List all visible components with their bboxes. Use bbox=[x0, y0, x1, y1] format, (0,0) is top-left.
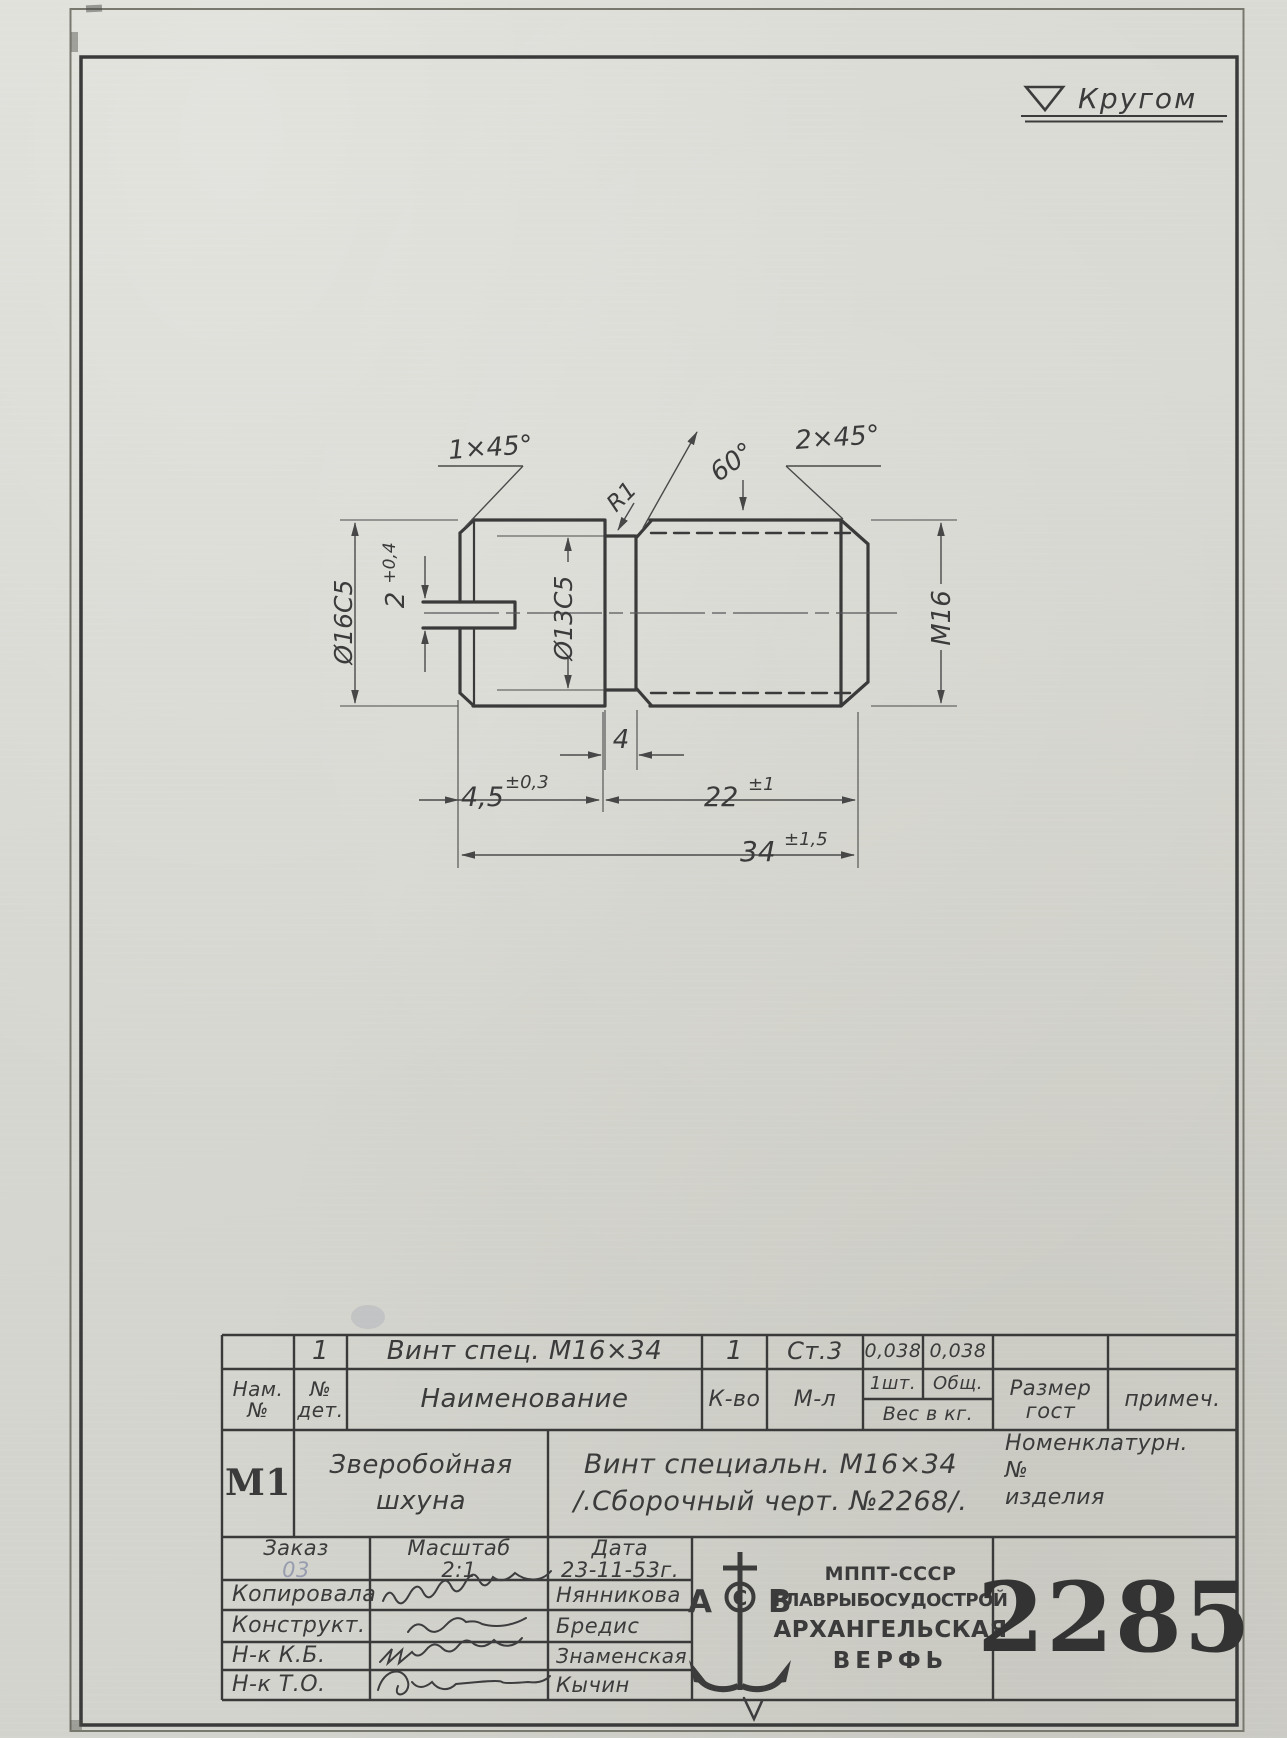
screw-slot bbox=[423, 602, 515, 628]
order-cell: Заказ 03 bbox=[222, 1538, 370, 1580]
header-qty: К-во bbox=[702, 1371, 767, 1428]
finish-triangle-icon bbox=[1026, 87, 1063, 110]
head-diameter-label: Ø16С5 bbox=[329, 580, 358, 666]
order-label: Заказ bbox=[263, 1537, 329, 1559]
callout-thread-angle: 60° bbox=[643, 432, 760, 528]
header-det: № дет. bbox=[294, 1371, 347, 1428]
staff-name-head-to: Кычин bbox=[556, 1670, 692, 1700]
drawing-number: 2285 bbox=[993, 1537, 1237, 1700]
org-line4: ВЕРФЬ bbox=[833, 1649, 948, 1673]
object-name-line1: Зверобойная bbox=[329, 1452, 512, 1479]
signature-designer bbox=[408, 1618, 526, 1632]
scale-cell: Масштаб 2:1 bbox=[370, 1538, 548, 1580]
nomenclature: Номенклатурн. № изделия bbox=[1005, 1432, 1237, 1535]
staff-role-head-kb: Н-к К.Б. bbox=[232, 1642, 368, 1670]
part-row-qty: 1 bbox=[702, 1337, 767, 1367]
date-cell: Дата 23-11-53г. bbox=[548, 1538, 692, 1580]
neck-length-label: 4 bbox=[613, 725, 630, 755]
nomenclature-line2: № bbox=[1005, 1459, 1028, 1482]
signature-head-to bbox=[378, 1672, 550, 1695]
part-title: Винт специальн. М16×34 /.Сборочный черт.… bbox=[548, 1432, 993, 1535]
callout-chamfer-right: 2×45° bbox=[786, 420, 881, 519]
finish-label: Кругом bbox=[1078, 82, 1197, 115]
header-size: Размер гост bbox=[993, 1371, 1108, 1428]
nomenclature-line1: Номенклатурн. bbox=[1005, 1432, 1188, 1455]
organization: МППТ-СССР ГЛАВРЫБОСУДОСТРОЙ АРХАНГЕЛЬСКА… bbox=[788, 1545, 993, 1693]
dim-neck-length: 4 bbox=[560, 710, 684, 770]
header-weight-total: Общ. bbox=[923, 1369, 993, 1399]
staff-name-copier: Нянникова bbox=[556, 1580, 692, 1610]
callout-chamfer-left: 1×45° bbox=[438, 430, 534, 527]
staff-name-head-kb: Знаменская bbox=[556, 1642, 692, 1670]
part-row-weight-total: 0,038 bbox=[923, 1337, 993, 1367]
staff-role-designer: Конструкт. bbox=[232, 1610, 368, 1642]
chamfer-left-label: 1×45° bbox=[447, 430, 533, 466]
header-nom: Нам. № bbox=[222, 1371, 294, 1428]
blueprint-sheet: Кругом Ø16С5 2 +0,4 bbox=[0, 0, 1287, 1738]
header-name: Наименование bbox=[347, 1371, 702, 1428]
head-length-label: 4,5 bbox=[461, 782, 504, 813]
header-material: М-л bbox=[767, 1371, 863, 1428]
staff-role-copier: Копировала bbox=[232, 1580, 368, 1610]
thread-length-label: 22 bbox=[704, 782, 738, 813]
header-weight-each: 1шт. bbox=[863, 1369, 923, 1399]
scale-label: Масштаб bbox=[407, 1537, 510, 1559]
part-row-name: Винт спец. М16×34 bbox=[352, 1337, 697, 1367]
finish-mark: Кругом bbox=[1021, 82, 1227, 122]
staff-role-head-to: Н-к Т.О. bbox=[232, 1670, 368, 1700]
org-line2: ГЛАВРЫБОСУДОСТРОЙ bbox=[774, 1592, 1008, 1611]
slot-width-label: 2 bbox=[381, 592, 411, 609]
neck-diameter-label: Ø13С5 bbox=[549, 576, 578, 662]
header-weight-unit: Вес в кг. bbox=[863, 1399, 993, 1430]
overall-length-tolerance: ±1,5 bbox=[784, 829, 828, 850]
date-label: Дата bbox=[592, 1537, 648, 1559]
header-det-line1: № bbox=[310, 1379, 331, 1400]
header-det-line2: дет. bbox=[297, 1400, 343, 1421]
nomenclature-line3: изделия bbox=[1005, 1486, 1105, 1509]
header-size-line1: Размер bbox=[1010, 1377, 1092, 1399]
part-row-weight-each: 0,038 bbox=[863, 1337, 923, 1367]
part-title-line2: /.Сборочный черт. №2268/. bbox=[574, 1488, 968, 1516]
dim-slot-width: 2 +0,4 bbox=[380, 542, 425, 672]
object-name: Зверобойная шхуна bbox=[294, 1432, 548, 1535]
head-length-tolerance: ±0,3 bbox=[505, 772, 549, 793]
thread-label: М16 bbox=[927, 590, 957, 646]
part-title-line1: Винт специальн. М16×34 bbox=[584, 1451, 957, 1479]
org-line1: МППТ-СССР bbox=[825, 1565, 957, 1585]
header-note: примеч. bbox=[1108, 1371, 1237, 1428]
header-nom-line2: № bbox=[247, 1400, 268, 1421]
part-row-number: 1 bbox=[294, 1337, 347, 1367]
scale-value: 2:1 bbox=[441, 1559, 476, 1581]
slot-width-tolerance: +0,4 bbox=[380, 542, 400, 583]
header-size-line2: гост bbox=[1026, 1400, 1076, 1422]
chamfer-right-label: 2×45° bbox=[794, 420, 880, 456]
finish-underline bbox=[1021, 116, 1227, 122]
org-line3: АРХАНГЕЛЬСКАЯ bbox=[773, 1618, 1007, 1642]
thread-length-tolerance: ±1 bbox=[748, 774, 775, 795]
assembly-code: М1 bbox=[222, 1432, 294, 1535]
staff-name-designer: Бредис bbox=[556, 1610, 692, 1642]
callout-fillet: R1 bbox=[602, 477, 642, 530]
overall-length-label: 34 bbox=[740, 835, 776, 868]
header-nom-line1: Нам. bbox=[233, 1379, 284, 1400]
dim-thread-length: 22 ±1 bbox=[606, 774, 855, 813]
thread-angle-label: 60° bbox=[705, 437, 760, 488]
object-name-line2: шхуна bbox=[376, 1488, 466, 1515]
fillet-label: R1 bbox=[602, 477, 642, 517]
part-row-material: Ст.3 bbox=[767, 1337, 863, 1367]
date-value: 23-11-53г. bbox=[561, 1559, 679, 1581]
dim-overall-length: 34 ±1,5 bbox=[462, 829, 854, 868]
dimensions: Ø16С5 2 +0,4 Ø13С5 М16 bbox=[329, 420, 957, 868]
order-value: 03 bbox=[282, 1559, 310, 1581]
logo-letter-c: С bbox=[733, 1586, 748, 1610]
